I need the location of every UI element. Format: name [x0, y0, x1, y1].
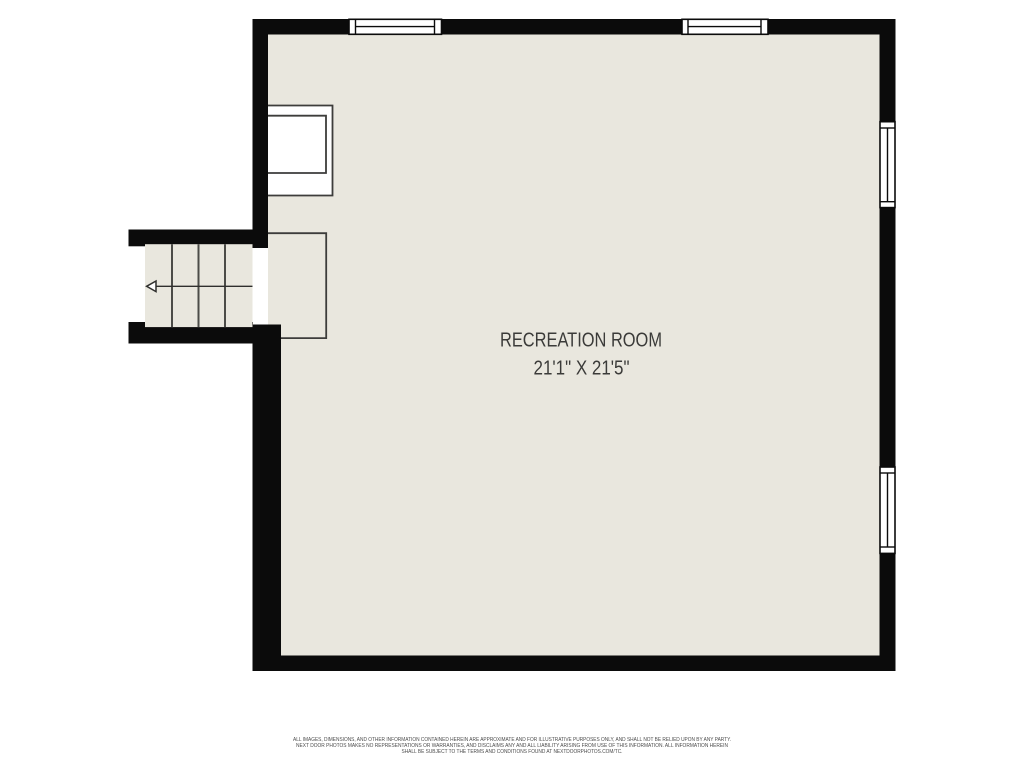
svg-text:21'1" X 21'5": 21'1" X 21'5": [534, 358, 630, 380]
svg-text:RECREATION ROOM: RECREATION ROOM: [500, 329, 662, 351]
svg-text:SHALL BE SUBJECT TO THE TERMS: SHALL BE SUBJECT TO THE TERMS AND CONDIT…: [402, 749, 623, 755]
